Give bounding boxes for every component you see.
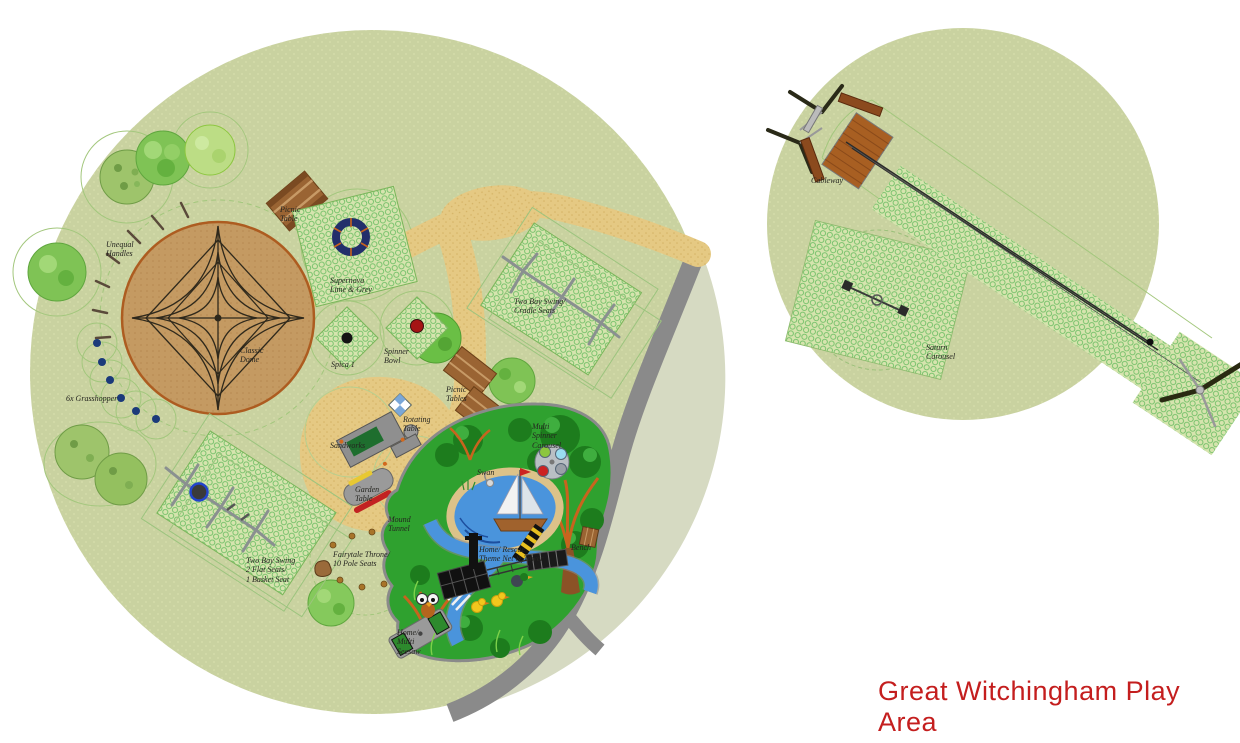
label-spica: Spica 1 (331, 360, 355, 369)
label-swing-cradle: Two Bay Swing/ Cradle Seats (514, 297, 565, 316)
playground-plan: Picnic TableSupernova Lime & GreyUnequal… (0, 0, 1240, 743)
label-sandworks: Sandworks (330, 441, 365, 450)
label-picnic-tables: Picnic Tables (446, 385, 467, 404)
label-grasshopper: 6x Grasshopper (66, 394, 117, 403)
label-rescue-tower: Home/ Rescue Theme Net & Tower (479, 545, 543, 564)
label-rotating-table: Rotating Table (403, 415, 431, 434)
label-cableway: Cableway (811, 176, 843, 185)
label-swing-basket: Two Bay Swing 2 Flat Seats/ 1 Basket Sea… (246, 556, 295, 584)
plan-title: Great Witchingham Play Area (878, 676, 1240, 738)
label-seesaw: Home/ Multi Seesaw (397, 628, 421, 656)
label-spinner-bowl: Spinner Bowl (384, 347, 409, 366)
label-picnic-table: Picnic Table (280, 205, 300, 224)
label-fairytale-throne: Fairytale Throne/ 10 Pole Seats (333, 550, 390, 569)
label-garden-table: Garden Table (355, 485, 379, 504)
label-saturn-carousel: Saturn Carousel (926, 343, 955, 362)
label-supernova: Supernova Lime & Grey (330, 276, 372, 295)
label-swan: Swan (477, 468, 494, 477)
labels-layer: Picnic TableSupernova Lime & GreyUnequal… (0, 0, 1240, 743)
label-mound-tunnel: Mound Tunnel (388, 515, 411, 534)
label-bench: Bench (571, 543, 591, 552)
label-unequal-handles: Unequal Handles (106, 240, 134, 259)
label-multi-spinner: Multi Spinner Carousel (532, 422, 561, 450)
label-classic-dome: Classic Dome (240, 346, 264, 365)
